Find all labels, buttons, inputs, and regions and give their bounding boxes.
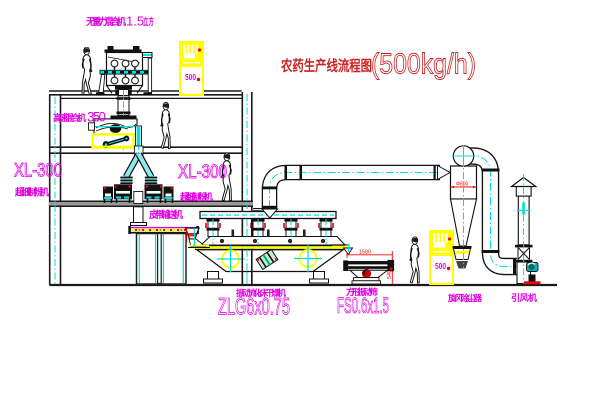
svg-text:引风机: 引风机 (511, 292, 537, 303)
svg-text:(500kg/h): (500kg/h) (371, 49, 476, 81)
svg-text:1.5: 1.5 (126, 14, 144, 29)
svg-text:超细制粉机: 超细制粉机 (179, 192, 213, 204)
svg-text:立方: 立方 (143, 16, 154, 28)
svg-text:无重力混合机: 无重力混合机 (85, 16, 126, 28)
svg-text:540: 540 (387, 270, 393, 279)
svg-text:FS0.6x1.5: FS0.6x1.5 (337, 293, 389, 318)
svg-text:350: 350 (87, 110, 106, 125)
svg-text:农药生产线流程图: 农药生产线流程图 (280, 57, 372, 75)
svg-text:旋风除尘器: 旋风除尘器 (447, 292, 482, 303)
svg-text:高速混合机: 高速混合机 (53, 112, 86, 123)
svg-text:皮带输送机: 皮带输送机 (148, 209, 183, 221)
svg-text:超细制粉机: 超细制粉机 (14, 187, 49, 199)
svg-text:1500: 1500 (359, 249, 371, 255)
svg-text:Φ800: Φ800 (456, 181, 469, 187)
svg-text:XL-300: XL-300 (178, 162, 227, 183)
svg-text:ZLG6x0.75: ZLG6x0.75 (218, 294, 290, 321)
svg-text:XL-300: XL-300 (14, 161, 62, 182)
